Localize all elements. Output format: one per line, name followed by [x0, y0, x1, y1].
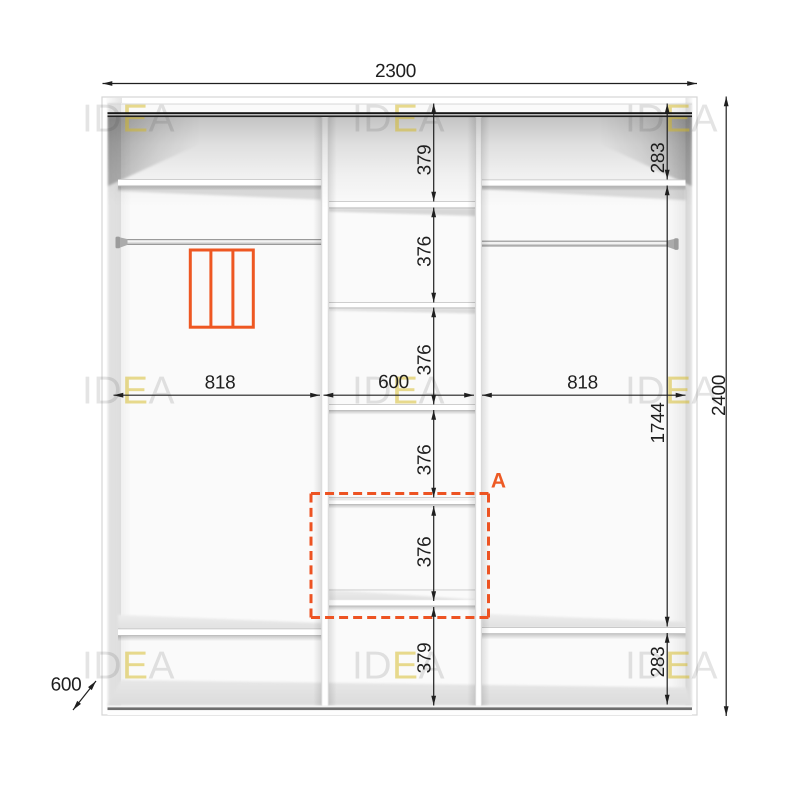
svg-text:379: 379: [415, 643, 436, 674]
svg-text:2400: 2400: [709, 375, 730, 416]
svg-text:818: 818: [205, 373, 236, 394]
svg-text:818: 818: [567, 373, 598, 394]
svg-text:A: A: [491, 470, 506, 493]
svg-text:283: 283: [648, 143, 669, 174]
svg-text:IDEA: IDEA: [82, 370, 175, 413]
svg-text:376: 376: [415, 445, 436, 476]
svg-text:600: 600: [51, 675, 82, 696]
svg-text:600: 600: [378, 372, 409, 393]
svg-text:376: 376: [415, 345, 436, 376]
svg-text:IDEA: IDEA: [625, 370, 718, 413]
svg-text:376: 376: [415, 537, 436, 568]
svg-text:283: 283: [648, 647, 669, 678]
svg-text:2300: 2300: [375, 61, 416, 82]
svg-text:1744: 1744: [648, 402, 669, 444]
svg-text:376: 376: [415, 236, 436, 267]
svg-text:379: 379: [415, 145, 436, 176]
svg-text:IDEA: IDEA: [625, 645, 718, 688]
